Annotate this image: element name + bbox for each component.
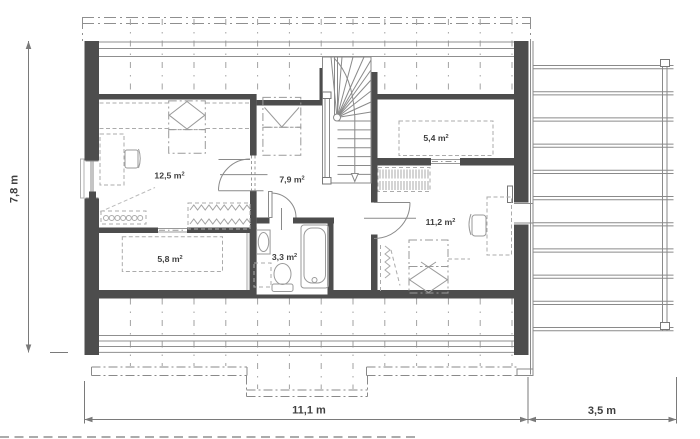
svg-text:5,8 m2: 5,8 m2 (157, 254, 182, 264)
svg-text:3,5 m: 3,5 m (588, 405, 616, 417)
svg-text:5,4 m2: 5,4 m2 (423, 133, 448, 143)
svg-text:11,2 m2: 11,2 m2 (426, 217, 456, 227)
svg-text:11,1 m: 11,1 m (292, 405, 326, 417)
svg-text:3,3 m2: 3,3 m2 (272, 252, 297, 262)
svg-text:7,9 m2: 7,9 m2 (279, 175, 304, 185)
svg-text:7,8 m: 7,8 m (9, 175, 21, 203)
svg-text:12,5 m2: 12,5 m2 (154, 171, 184, 181)
